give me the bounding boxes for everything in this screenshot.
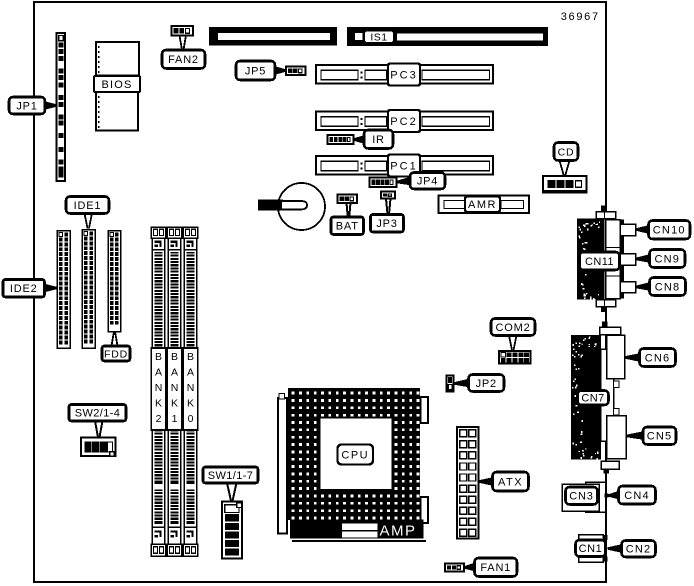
svg-text:AMR: AMR [468,199,497,211]
svg-text:A: A [171,367,178,379]
svg-text:IR: IR [372,134,385,146]
svg-text:K: K [155,398,162,410]
svg-text:A: A [155,367,162,379]
svg-text:PC3: PC3 [390,69,417,81]
svg-text:FAN2: FAN2 [168,54,199,66]
svg-text:CN11: CN11 [585,256,614,268]
svg-text:N: N [171,382,179,394]
svg-text:IS1: IS1 [370,32,387,44]
svg-text:CN10: CN10 [653,225,686,237]
svg-text:CPU: CPU [341,449,369,461]
svg-text:JP4: JP4 [417,176,438,188]
svg-text:2: 2 [156,413,162,425]
svg-text:K: K [187,398,194,410]
svg-text:K: K [171,398,178,410]
svg-text:N: N [187,382,195,394]
svg-text:CN3: CN3 [569,491,593,503]
svg-text:B: B [187,351,194,363]
svg-text:COM2: COM2 [496,322,531,334]
svg-text:PC2: PC2 [390,116,417,128]
svg-text:FAN1: FAN1 [480,562,511,574]
svg-text:IDE2: IDE2 [10,283,38,295]
svg-text:A: A [187,367,194,379]
svg-text:IDE1: IDE1 [74,200,102,212]
svg-text:N: N [155,382,163,394]
svg-text:BAT: BAT [336,221,359,233]
svg-text:CN4: CN4 [624,490,650,502]
svg-text:1: 1 [172,413,178,425]
svg-text:SW2/1-4: SW2/1-4 [75,408,121,420]
svg-text:0: 0 [188,413,194,425]
svg-text:AMP: AMP [379,523,416,540]
svg-text:PC1: PC1 [390,160,417,172]
svg-text:JP3: JP3 [376,218,397,230]
svg-text:CN2: CN2 [626,544,652,556]
svg-text:ATX: ATX [498,476,523,488]
svg-text:36967: 36967 [560,12,599,24]
svg-text:CN9: CN9 [654,253,680,265]
svg-text:SW1/1-7: SW1/1-7 [208,470,254,482]
svg-text:B: B [155,351,162,363]
svg-text:JP1: JP1 [16,100,37,112]
svg-text:CN6: CN6 [645,352,671,364]
svg-text:CD: CD [558,146,575,158]
svg-text:CN5: CN5 [647,431,673,443]
svg-text:CN1: CN1 [579,543,603,555]
svg-text:CN8: CN8 [655,281,681,293]
svg-text:CN7: CN7 [581,393,604,405]
svg-text:JP5: JP5 [245,65,266,77]
svg-text:FDD: FDD [104,348,128,360]
svg-text:BIOS: BIOS [101,79,132,91]
svg-text:JP2: JP2 [476,378,497,390]
svg-text:B: B [171,351,178,363]
